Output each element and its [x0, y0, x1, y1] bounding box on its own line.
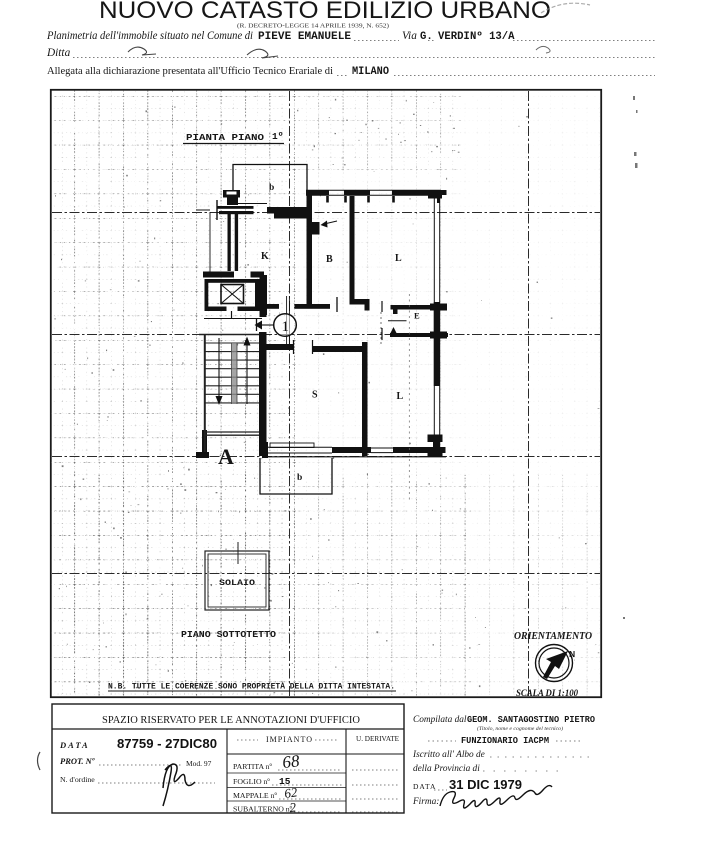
svg-text:GEOM. SANTAGOSTINO PIETRO: GEOM. SANTAGOSTINO PIETRO [467, 714, 595, 725]
svg-text:S: S [312, 390, 318, 401]
svg-text:87759 - 27DIC80: 87759 - 27DIC80 [117, 737, 217, 751]
svg-text:SPAZIO RISERVATO PER LE ANNOTA: SPAZIO RISERVATO PER LE ANNOTAZIONI D'UF… [102, 715, 360, 726]
svg-text:Mod. 97: Mod. 97 [186, 759, 212, 768]
svg-text:b: b [269, 183, 274, 193]
svg-text:Planimetria dell'immobile situ: Planimetria dell'immobile situato nel Co… [46, 30, 253, 42]
svg-text:G.: G. [420, 31, 433, 43]
svg-text:PIEVE EMANUELE: PIEVE EMANUELE [258, 31, 351, 43]
svg-text:N: N [569, 649, 575, 659]
svg-text:Nº 13/A: Nº 13/A [470, 31, 515, 43]
svg-text:1: 1 [282, 319, 290, 335]
svg-text:SOLAIO: SOLAIO [219, 579, 255, 588]
svg-text:68: 68 [281, 751, 300, 772]
svg-text:N. d'ordine: N. d'ordine [60, 775, 95, 784]
svg-text:Ditta: Ditta [46, 47, 71, 59]
svg-text:MILANO: MILANO [352, 66, 389, 78]
svg-text:N.B. TUTTE LE COERENZE SONO PR: N.B. TUTTE LE COERENZE SONO PROPRIETÀ DE… [108, 683, 395, 692]
svg-text:ORIENTAMENTO: ORIENTAMENTO [514, 631, 592, 642]
svg-text:MAPPALE nº: MAPPALE nº [233, 791, 278, 800]
svg-text:della Provincia di: della Provincia di [413, 764, 480, 774]
svg-text:FUNZIONARIO IACPM: FUNZIONARIO IACPM [461, 735, 549, 746]
svg-text:Firma:: Firma: [412, 797, 439, 807]
svg-text:U. DERIVATE: U. DERIVATE [356, 735, 400, 743]
svg-text:B: B [326, 254, 333, 265]
svg-text:A: A [218, 444, 234, 469]
svg-text:PROT. Nº: PROT. Nº [60, 756, 95, 766]
svg-text:VERDI: VERDI [438, 31, 470, 43]
svg-text:(R. DECRETO-LEGGE 14 APRILE 19: (R. DECRETO-LEGGE 14 APRILE 1939, N. 652… [237, 23, 389, 30]
svg-text:PARTITA nº: PARTITA nº [233, 762, 273, 771]
svg-text:Via: Via [402, 30, 417, 42]
svg-text:b: b [297, 473, 302, 483]
svg-text:K: K [261, 251, 269, 262]
svg-text:SUBALTERNO nº: SUBALTERNO nº [233, 805, 293, 814]
svg-text:E: E [414, 311, 420, 321]
svg-text:NUOVO CATASTO EDILIZIO URBANO: NUOVO CATASTO EDILIZIO URBANO [99, 0, 551, 24]
svg-text:Allegata alla dichiarazione pr: Allegata alla dichiarazione presentata a… [47, 65, 333, 77]
svg-text:31 DIC 1979: 31 DIC 1979 [449, 778, 522, 792]
svg-text:(Titolo, nome e cognome del te: (Titolo, nome e cognome del tecnico) [477, 725, 563, 732]
svg-text:Compilata dal: Compilata dal [413, 715, 467, 725]
svg-text:DATA: DATA [59, 740, 90, 750]
svg-text:IMPIANTO: IMPIANTO [266, 735, 313, 744]
svg-text:1º: 1º [272, 131, 283, 142]
svg-text:L: L [397, 391, 404, 402]
svg-text:L: L [395, 253, 402, 264]
svg-text:PIANTA PIANO: PIANTA PIANO [186, 132, 264, 143]
svg-text:PIANO SOTTOTETTO: PIANO SOTTOTETTO [181, 630, 277, 640]
svg-text:SCALA DI 1:100: SCALA DI 1:100 [516, 688, 578, 698]
svg-text:FOGLIO nº: FOGLIO nº [233, 777, 270, 786]
svg-text:Iscritto all' Albo de: Iscritto all' Albo de [412, 750, 485, 760]
svg-text:DATA: DATA [413, 782, 436, 791]
svg-text:15: 15 [279, 776, 291, 787]
